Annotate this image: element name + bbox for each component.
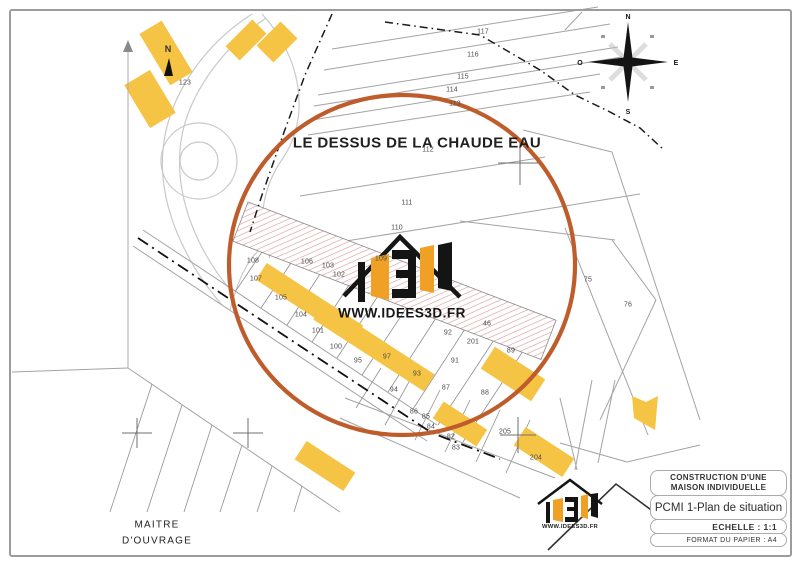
parcel-label-115: 115 [457, 74, 469, 81]
project-title-line2: MAISON INDIVIDUELLE [651, 483, 786, 493]
lieu-dit-label: LE DESSUS DE LA CHAUDE EAU [293, 135, 541, 152]
title-block: CONSTRUCTION D'UNE MAISON INDIVIDUELLE P… [650, 471, 787, 547]
parcel-label-108: 108 [247, 258, 259, 265]
parcel-label-111: 111 [401, 200, 412, 207]
parcel-label-106: 106 [301, 259, 313, 266]
watermark-url: WWW.IDEES3D.FR [338, 306, 466, 321]
parcel-label-112: 112 [422, 147, 434, 154]
parcel-label-46: 46 [483, 321, 491, 328]
parcel-label-92: 92 [444, 330, 452, 337]
parcel-label-204: 204 [530, 455, 542, 462]
document-title-cell: PCMI 1-Plan de situation [650, 495, 787, 520]
parcel-label-100: 100 [330, 344, 342, 351]
parcel-label-87: 87 [442, 385, 450, 392]
compass-north-label: N [625, 14, 630, 21]
parcel-label-109: 109 [375, 256, 387, 263]
bottom-left-parcel-lines [12, 368, 340, 512]
parcel-label-205: 205 [499, 429, 511, 436]
parcel-label-113: 113 [449, 101, 461, 108]
project-title-line1: CONSTRUCTION D'UNE [651, 473, 786, 483]
project-title-cell: CONSTRUCTION D'UNE MAISON INDIVIDUELLE [650, 470, 787, 496]
plan-page: N S E O LE [0, 0, 800, 566]
parcel-label-114: 114 [446, 87, 458, 94]
compass-east-label: E [674, 60, 679, 67]
parcel-label-83: 83 [452, 445, 460, 452]
parcel-label-101: 101 [312, 328, 324, 335]
parcel-label-110: 110 [391, 225, 403, 232]
parcel-label-76: 76 [624, 302, 632, 309]
document-title: PCMI 1-Plan de situation [651, 502, 786, 514]
parcel-label-97: 97 [383, 354, 391, 361]
parcel-label-94: 94 [390, 387, 398, 394]
north-label: N [165, 44, 172, 54]
scale-value: ECHELLE : 1:1 [651, 522, 777, 532]
parcel-label-105: 105 [275, 295, 287, 302]
footer-logo-url: WWW.IDEES3D.FR [542, 524, 598, 530]
compass-south-label: S [626, 109, 631, 116]
footer-logo [538, 480, 602, 523]
right-parcel-lines [460, 12, 700, 470]
parcel-label-95: 95 [354, 358, 362, 365]
compass-rose: N S E O [577, 14, 678, 116]
paper-format-value: FORMAT DU PAPIER : A4 [651, 537, 777, 544]
parcel-label-85: 85 [422, 414, 430, 421]
parcel-label-117: 117 [477, 29, 489, 36]
parcel-label-89: 89 [507, 348, 515, 355]
parcel-label-75: 75 [584, 277, 592, 284]
parcel-label-107: 107 [250, 276, 262, 283]
parcel-label-123: 123 [179, 80, 191, 87]
parcel-label-102: 102 [333, 272, 345, 279]
compass-west-label: O [577, 60, 583, 67]
parcel-strips [290, 7, 640, 250]
parcel-label-88: 88 [481, 390, 489, 397]
parcel-label-86: 86 [410, 409, 418, 416]
parcel-label-93: 93 [413, 371, 421, 378]
parcel-label-104: 104 [295, 312, 307, 319]
parcel-label-103: 103 [322, 263, 334, 270]
parcel-label-116: 116 [467, 52, 479, 59]
parcel-label-91: 91 [451, 358, 459, 365]
maitre-ouvrage-line2: D'OUVRAGE [122, 536, 192, 547]
parcel-label-201: 201 [467, 339, 479, 346]
paper-format-cell: FORMAT DU PAPIER : A4 [650, 533, 787, 547]
maitre-ouvrage-line1: MAITRE [135, 520, 180, 531]
scale-cell: ECHELLE : 1:1 [650, 519, 787, 534]
parcel-label-84: 84 [427, 424, 435, 431]
parcel-label-82: 82 [447, 434, 455, 441]
